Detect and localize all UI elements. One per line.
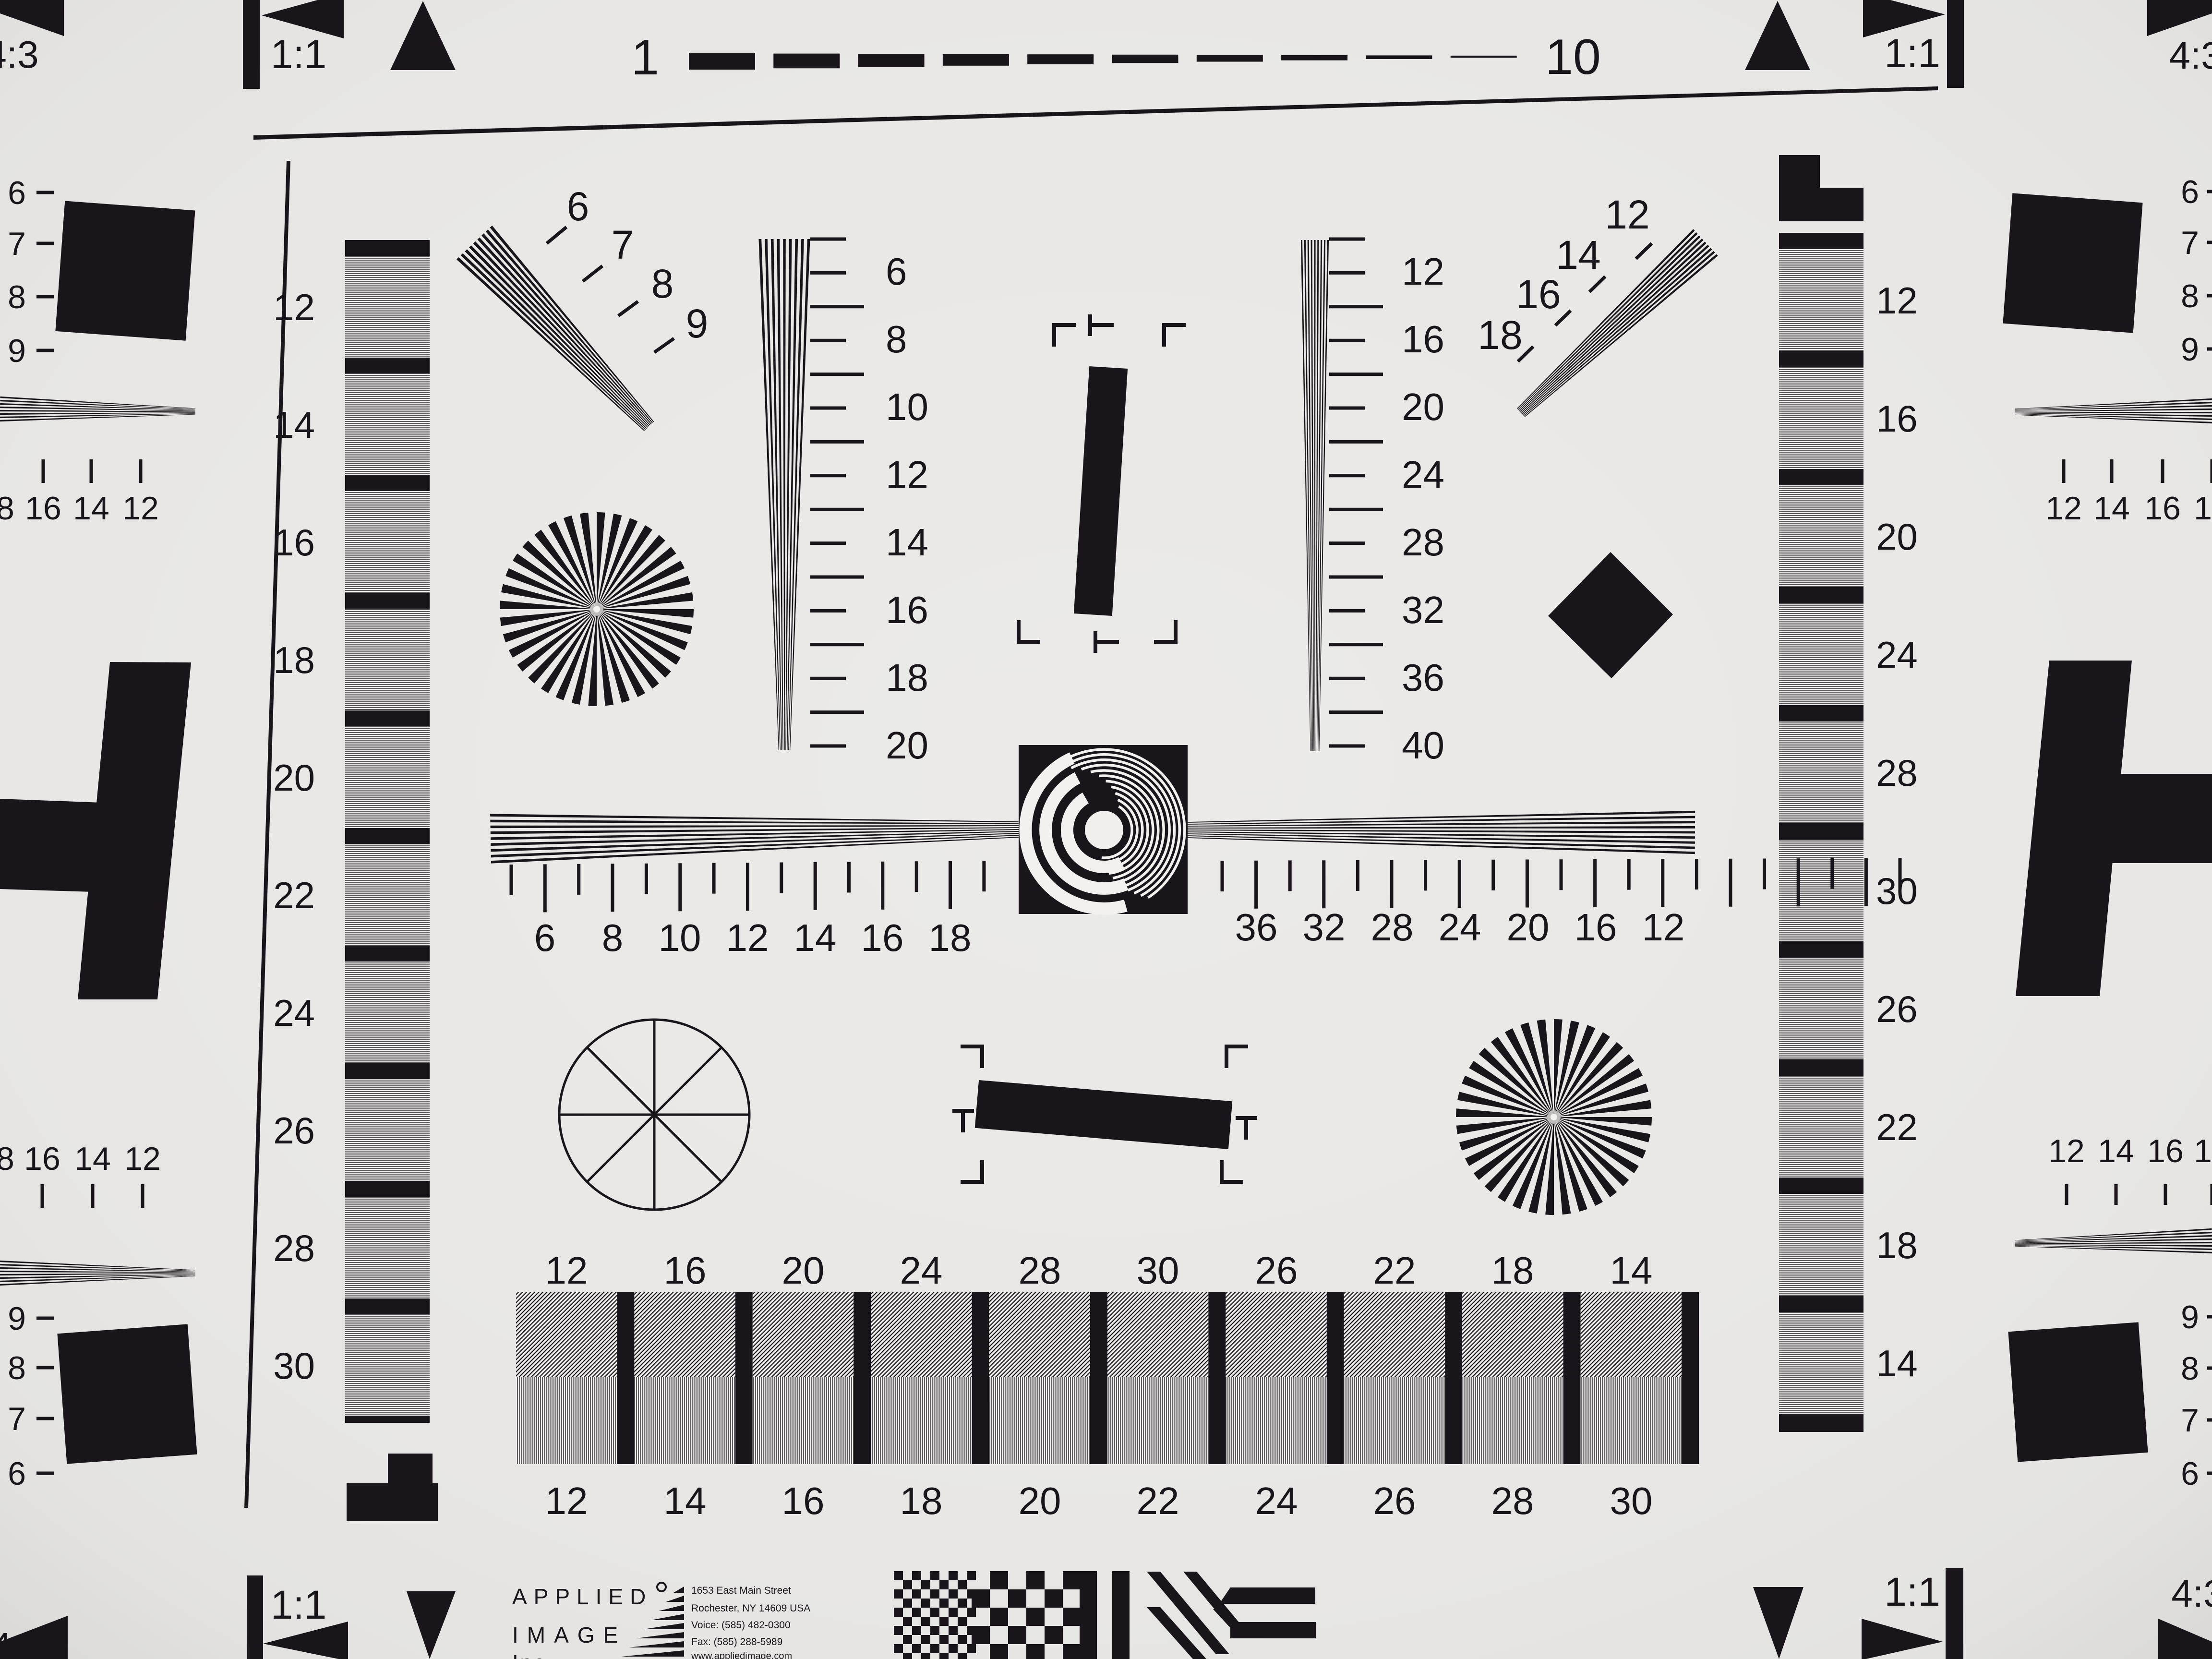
svg-text:28: 28 <box>1371 906 1414 949</box>
svg-text:9: 9 <box>8 333 26 369</box>
svg-text:18: 18 <box>273 639 315 681</box>
svg-text:6: 6 <box>886 250 907 293</box>
svg-text:8: 8 <box>651 261 674 306</box>
svg-text:12: 12 <box>1876 279 1918 322</box>
svg-text:12: 12 <box>545 1479 588 1522</box>
svg-text:30: 30 <box>1610 1479 1653 1522</box>
svg-text:12: 12 <box>273 286 315 328</box>
svg-text:14: 14 <box>1610 1249 1653 1292</box>
svg-text:18: 18 <box>1478 313 1522 358</box>
svg-text:24: 24 <box>1402 453 1444 496</box>
svg-text:6: 6 <box>2181 1455 2199 1492</box>
svg-text:10: 10 <box>659 916 701 959</box>
svg-text:18: 18 <box>929 916 972 959</box>
svg-text:24: 24 <box>1439 906 1481 949</box>
svg-text:7: 7 <box>8 1401 26 1437</box>
svg-text:12: 12 <box>1642 906 1685 949</box>
svg-text:16: 16 <box>886 589 928 631</box>
svg-text:16: 16 <box>1876 397 1918 440</box>
svg-text:12: 12 <box>545 1249 588 1292</box>
svg-text:22: 22 <box>1137 1479 1179 1522</box>
svg-text:1:1: 1:1 <box>271 1582 327 1627</box>
svg-text:26: 26 <box>1876 988 1918 1030</box>
svg-text:26: 26 <box>1255 1249 1298 1292</box>
svg-text:Rochester, NY 14609 USA: Rochester, NY 14609 USA <box>691 1603 810 1614</box>
svg-text:4:3: 4:3 <box>2169 34 2212 77</box>
svg-text:14: 14 <box>1556 232 1600 277</box>
svg-text:16: 16 <box>861 916 904 959</box>
svg-text:32: 32 <box>1303 906 1346 949</box>
svg-text:22: 22 <box>273 874 315 916</box>
svg-text:9: 9 <box>8 1300 26 1337</box>
svg-text:20: 20 <box>1402 385 1444 428</box>
svg-text:16: 16 <box>782 1479 825 1522</box>
svg-text:1: 1 <box>631 30 659 85</box>
svg-text:16: 16 <box>24 1141 60 1177</box>
svg-text:8: 8 <box>8 1350 26 1386</box>
svg-text:7: 7 <box>612 222 634 267</box>
svg-text:18: 18 <box>886 656 928 699</box>
svg-text:9: 9 <box>686 301 709 346</box>
svg-text:16: 16 <box>1575 906 1617 949</box>
svg-text:Inc: Inc <box>512 1650 546 1659</box>
svg-text:18: 18 <box>1491 1249 1534 1292</box>
svg-text:8: 8 <box>602 916 624 959</box>
svg-text:26: 26 <box>273 1109 315 1152</box>
svg-text:APPLIED: APPLIED <box>512 1584 652 1609</box>
svg-text:20: 20 <box>782 1249 825 1292</box>
svg-text:30: 30 <box>273 1345 315 1387</box>
svg-text:40: 40 <box>1402 724 1444 767</box>
svg-text:12: 12 <box>1605 192 1649 237</box>
svg-text:36: 36 <box>1235 906 1278 949</box>
svg-text:24: 24 <box>1255 1479 1298 1522</box>
svg-text:6: 6 <box>8 175 26 211</box>
svg-text:16: 16 <box>1402 318 1444 361</box>
svg-text:6: 6 <box>567 184 589 229</box>
svg-text:18: 18 <box>900 1479 943 1522</box>
svg-text:16: 16 <box>273 521 315 564</box>
svg-text:8: 8 <box>8 279 26 315</box>
svg-text:28: 28 <box>273 1227 315 1269</box>
svg-text:12: 12 <box>124 1141 161 1177</box>
svg-text:16: 16 <box>25 490 61 527</box>
svg-text:12: 12 <box>2045 490 2082 527</box>
svg-text:1:1: 1:1 <box>1884 31 1940 76</box>
svg-text:14: 14 <box>2098 1133 2134 1169</box>
svg-text:24: 24 <box>900 1249 943 1292</box>
svg-text:1653 East Main Street: 1653 East Main Street <box>691 1585 791 1596</box>
svg-text:18: 18 <box>0 490 14 527</box>
svg-text:24: 24 <box>1876 634 1918 676</box>
svg-text:6: 6 <box>2181 174 2199 210</box>
svg-text:16: 16 <box>1516 272 1561 317</box>
svg-text:30: 30 <box>1137 1249 1179 1292</box>
svg-text:10: 10 <box>886 385 928 428</box>
svg-text:14: 14 <box>2093 490 2130 527</box>
svg-text:28: 28 <box>1019 1249 1061 1292</box>
svg-text:14: 14 <box>273 404 315 446</box>
svg-text:10: 10 <box>1545 29 1601 85</box>
svg-text:18: 18 <box>0 1141 14 1177</box>
svg-text:14: 14 <box>1876 1342 1918 1384</box>
svg-text:12: 12 <box>726 916 769 959</box>
svg-text:16: 16 <box>2144 490 2181 527</box>
svg-text:Fax: (585) 288-5989: Fax: (585) 288-5989 <box>691 1636 782 1647</box>
svg-text:14: 14 <box>794 916 837 959</box>
svg-text:30: 30 <box>1876 870 1918 912</box>
svg-text:12: 12 <box>2048 1133 2085 1169</box>
svg-text:28: 28 <box>1491 1479 1534 1522</box>
svg-text:IMAGE: IMAGE <box>512 1623 626 1647</box>
svg-text:14: 14 <box>73 490 109 527</box>
svg-text:4:3: 4:3 <box>0 1625 44 1659</box>
svg-text:20: 20 <box>1507 906 1550 949</box>
svg-text:20: 20 <box>1019 1479 1061 1522</box>
svg-text:8: 8 <box>2181 278 2199 314</box>
svg-text:12: 12 <box>122 490 159 527</box>
svg-text:6: 6 <box>534 916 556 959</box>
svg-text:4:3: 4:3 <box>2171 1572 2212 1615</box>
svg-text:6: 6 <box>8 1455 26 1492</box>
svg-text:18: 18 <box>1876 1224 1918 1266</box>
svg-text:1:1: 1:1 <box>271 32 327 77</box>
svg-text:7: 7 <box>2181 1402 2199 1439</box>
svg-text:28: 28 <box>1876 752 1918 794</box>
svg-text:8: 8 <box>886 318 907 361</box>
svg-text:7: 7 <box>2181 225 2199 261</box>
svg-text:12: 12 <box>1402 250 1444 293</box>
svg-text:9: 9 <box>2181 331 2199 368</box>
svg-text:26: 26 <box>1373 1479 1416 1522</box>
svg-text:18: 18 <box>2194 490 2212 527</box>
svg-text:8: 8 <box>2181 1350 2199 1387</box>
svg-text:16: 16 <box>2147 1133 2184 1169</box>
svg-text:4:3: 4:3 <box>0 33 39 76</box>
svg-text:www.appliedimage.com: www.appliedimage.com <box>691 1651 792 1659</box>
svg-text:18: 18 <box>2194 1133 2212 1169</box>
svg-text:16: 16 <box>664 1249 707 1292</box>
svg-text:14: 14 <box>74 1141 111 1177</box>
svg-text:24: 24 <box>273 992 315 1034</box>
svg-text:32: 32 <box>1402 589 1444 631</box>
svg-text:7: 7 <box>8 226 26 262</box>
svg-text:20: 20 <box>1876 516 1918 558</box>
svg-text:14: 14 <box>664 1479 707 1522</box>
svg-text:Voice: (585) 482-0300: Voice: (585) 482-0300 <box>691 1620 791 1631</box>
svg-text:28: 28 <box>1402 521 1444 564</box>
svg-text:14: 14 <box>886 521 928 564</box>
svg-text:9: 9 <box>2181 1299 2199 1335</box>
svg-text:22: 22 <box>1373 1249 1416 1292</box>
svg-text:12: 12 <box>886 453 928 496</box>
svg-text:22: 22 <box>1876 1106 1918 1148</box>
svg-text:20: 20 <box>273 757 315 799</box>
svg-text:20: 20 <box>886 724 928 767</box>
svg-text:1:1: 1:1 <box>1884 1569 1940 1614</box>
svg-text:36: 36 <box>1402 656 1444 699</box>
